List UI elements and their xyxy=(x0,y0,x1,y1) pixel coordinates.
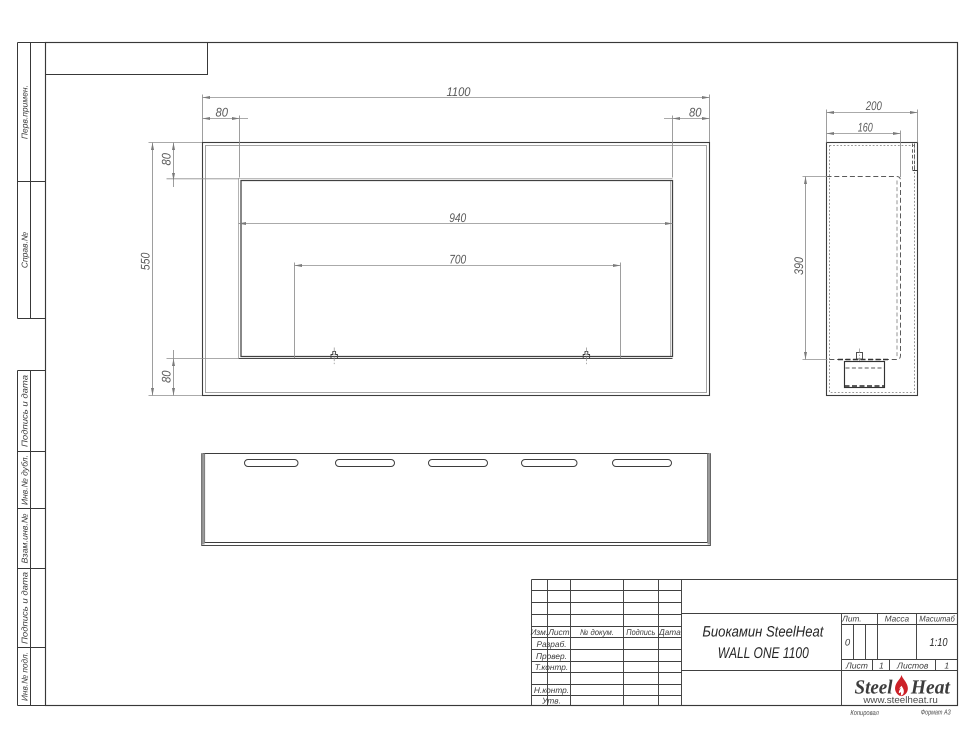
svg-text:Изм.: Изм. xyxy=(530,627,548,637)
svg-text:1: 1 xyxy=(879,661,884,671)
svg-text:80: 80 xyxy=(159,370,173,382)
svg-text:WALL ONE 1100: WALL ONE 1100 xyxy=(718,645,809,662)
svg-text:Копировал: Копировал xyxy=(850,708,879,717)
svg-text:www.steelheat.ru: www.steelheat.ru xyxy=(862,695,938,706)
svg-text:940: 940 xyxy=(449,211,466,225)
svg-text:Разраб.: Разраб. xyxy=(536,639,566,649)
svg-text:1:10: 1:10 xyxy=(930,637,948,649)
svg-text:0: 0 xyxy=(845,638,851,649)
svg-text:Инв.№ подл.: Инв.№ подл. xyxy=(20,652,30,701)
svg-text:Лит.: Лит. xyxy=(841,614,861,624)
svg-text:80: 80 xyxy=(689,105,702,119)
svg-text:Дата: Дата xyxy=(658,627,681,637)
svg-text:Масштаб: Масштаб xyxy=(919,614,955,624)
svg-text:Подпись и дата: Подпись и дата xyxy=(20,572,30,644)
svg-text:Подпись и дата: Подпись и дата xyxy=(20,375,30,447)
svg-text:550: 550 xyxy=(138,253,152,271)
svg-text:Перв.примен.: Перв.примен. xyxy=(20,85,30,139)
svg-text:200: 200 xyxy=(865,99,882,113)
svg-text:Листов: Листов xyxy=(896,661,929,671)
svg-text:Формат А3: Формат А3 xyxy=(921,707,951,716)
svg-text:Подпись: Подпись xyxy=(626,627,655,637)
svg-text:Биокамин SteelHeat: Биокамин SteelHeat xyxy=(702,624,824,641)
svg-text:1: 1 xyxy=(944,661,949,671)
svg-text:Утв.: Утв. xyxy=(541,696,561,706)
svg-text:80: 80 xyxy=(159,153,173,165)
svg-text:Т.контр.: Т.контр. xyxy=(535,662,568,672)
svg-text:Справ.№: Справ.№ xyxy=(20,232,30,268)
svg-text:160: 160 xyxy=(858,120,873,134)
svg-text:№ докум.: № докум. xyxy=(580,627,614,637)
svg-text:Инв.№ дубл.: Инв.№ дубл. xyxy=(20,455,30,505)
svg-text:700: 700 xyxy=(449,252,466,266)
svg-text:Н.контр.: Н.контр. xyxy=(534,685,569,695)
svg-text:Лист: Лист xyxy=(547,627,569,637)
svg-text:Масса: Масса xyxy=(885,614,910,624)
svg-text:Лист: Лист xyxy=(845,661,868,671)
svg-text:390: 390 xyxy=(792,257,806,275)
svg-text:Провер.: Провер. xyxy=(536,651,567,661)
svg-text:Взам.инв.№: Взам.инв.№ xyxy=(20,514,30,564)
svg-text:80: 80 xyxy=(215,105,228,119)
svg-text:1100: 1100 xyxy=(447,85,471,99)
